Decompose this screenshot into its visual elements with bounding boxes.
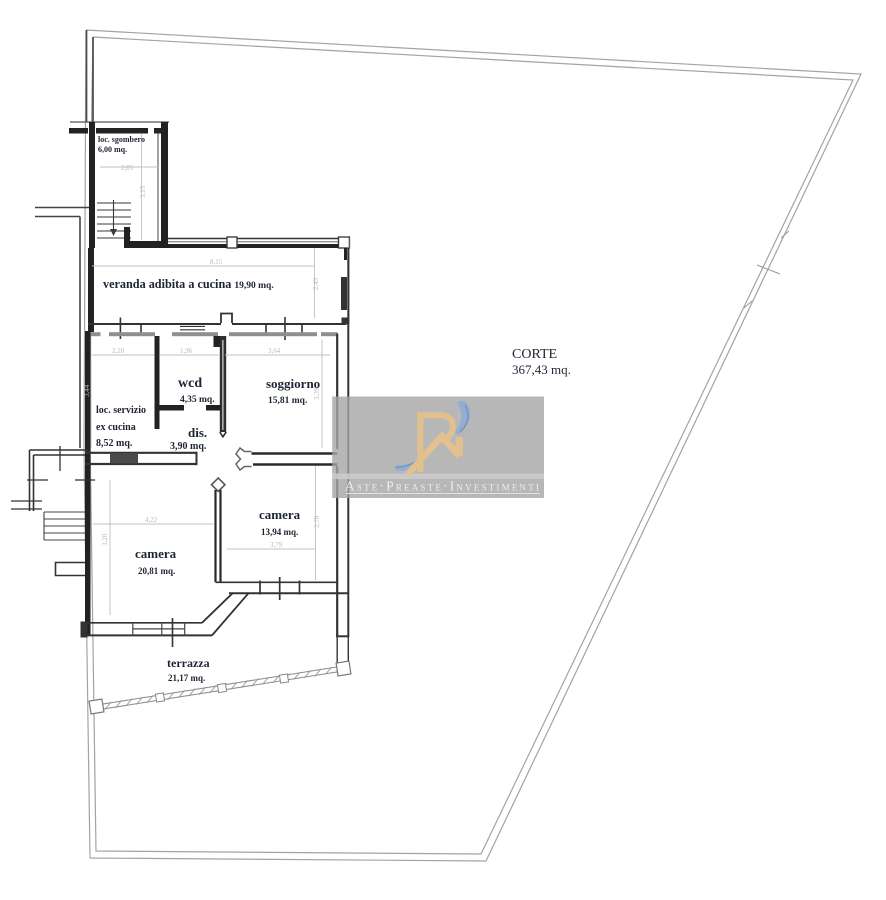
svg-text:2,20: 2,20 — [112, 347, 125, 355]
svg-text:4,35 mq.: 4,35 mq. — [180, 395, 215, 405]
svg-text:loc. sgombero: loc. sgombero — [98, 135, 145, 144]
svg-text:3,90 mq.: 3,90 mq. — [170, 441, 207, 452]
svg-text:wcd: wcd — [178, 376, 202, 391]
svg-text:6,00 mq.: 6,00 mq. — [98, 145, 127, 154]
svg-text:3,44: 3,44 — [83, 384, 91, 397]
svg-text:4,22: 4,22 — [145, 516, 158, 524]
svg-text:dis.: dis. — [188, 425, 207, 440]
svg-text:367,43 mq.: 367,43 mq. — [512, 362, 571, 377]
svg-text:soggiorno: soggiorno — [266, 376, 320, 391]
svg-text:2,70: 2,70 — [313, 515, 321, 528]
svg-text:13,94 mq.: 13,94 mq. — [261, 527, 298, 537]
svg-text:CORTE: CORTE — [512, 347, 557, 362]
svg-text:8,52 mq.: 8,52 mq. — [96, 438, 133, 449]
svg-text:3,79: 3,79 — [270, 541, 283, 549]
svg-text:ex cucina: ex cucina — [96, 422, 136, 433]
svg-text:2,05: 2,05 — [121, 164, 134, 172]
svg-text:loc. servizio: loc. servizio — [96, 405, 146, 416]
svg-text:camera: camera — [135, 546, 177, 561]
svg-text:2,43: 2,43 — [312, 277, 320, 290]
svg-text:20,81 mq.: 20,81 mq. — [138, 566, 175, 576]
svg-text:Aste·Preaste·Investimenti: Aste·Preaste·Investimenti — [345, 479, 541, 494]
svg-text:3,20: 3,20 — [101, 533, 109, 546]
svg-text:8,15: 8,15 — [210, 258, 223, 266]
svg-text:21,17 mq.: 21,17 mq. — [168, 673, 205, 683]
svg-text:3,64: 3,64 — [268, 347, 281, 355]
svg-text:15,81 mq.: 15,81 mq. — [268, 396, 307, 406]
svg-text:camera: camera — [259, 507, 301, 522]
svg-text:1,96: 1,96 — [180, 347, 193, 355]
svg-text:3,15: 3,15 — [139, 185, 147, 198]
svg-text:terrazza: terrazza — [167, 656, 210, 670]
